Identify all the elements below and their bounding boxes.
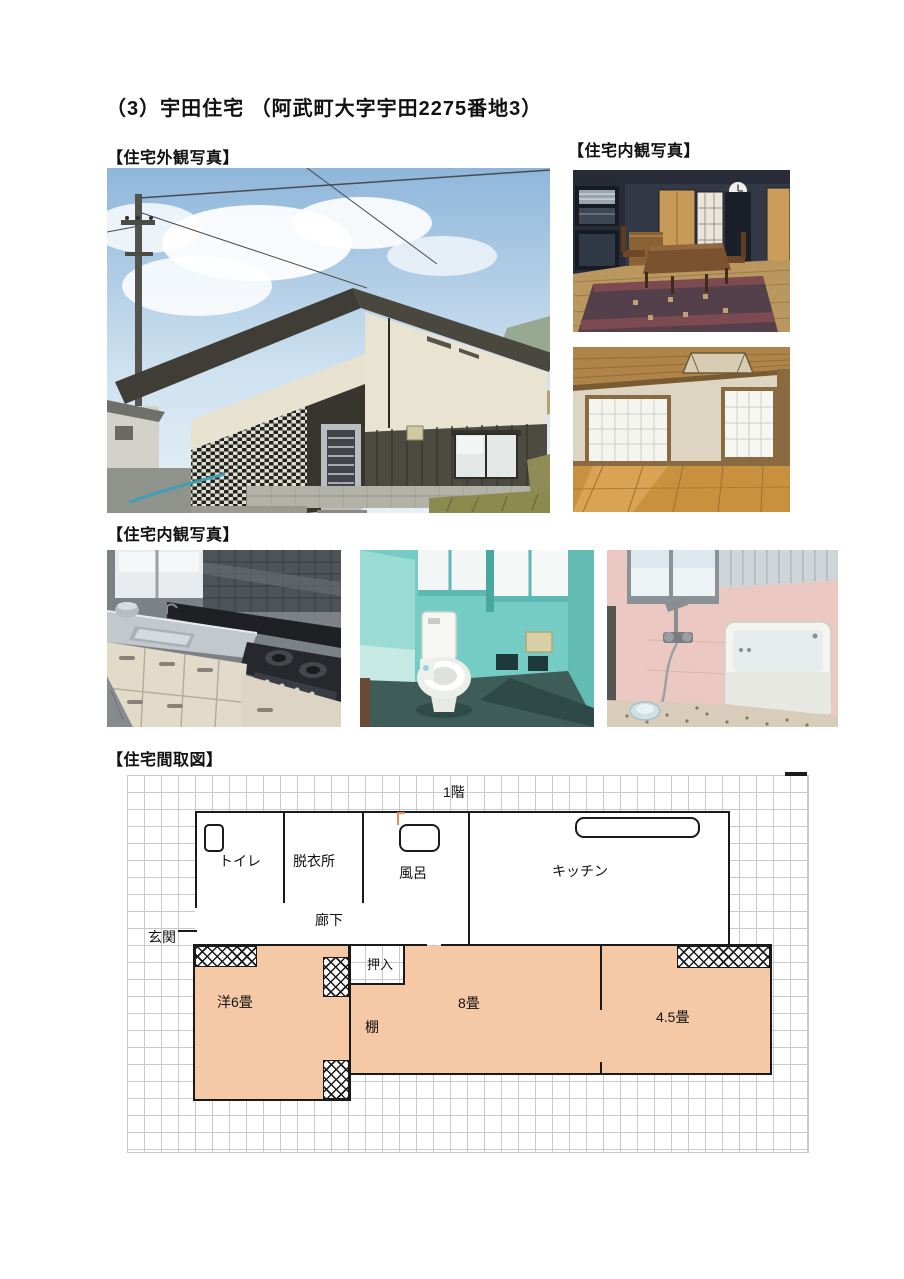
- opening-hatch-45tatami-top: [677, 946, 770, 968]
- entrance-step-line: [178, 930, 197, 932]
- interior-woodroom-illustration: [573, 347, 790, 512]
- room-label-hallway: 廊下: [315, 913, 343, 928]
- interior-photo-wood-floor-room: [573, 347, 790, 512]
- page-title: （3）宇田住宅 （阿武町大字宇田2275番地3）: [106, 92, 542, 121]
- opening-hatch-west6-right-upper: [323, 957, 349, 997]
- wall-toilet-dressing: [283, 811, 285, 903]
- wall-top: [195, 811, 730, 813]
- bath-illustration: [607, 550, 838, 727]
- wall-dressing-bath: [362, 811, 364, 903]
- room-label-toilet: トイレ: [219, 854, 261, 869]
- room-label-closet: 押入: [367, 957, 393, 972]
- room-label-western6: 洋6畳: [217, 995, 253, 1010]
- wall-kitchen-right: [728, 811, 730, 944]
- interior-photo-tatami-room: [573, 170, 790, 332]
- wall-western6-bottom: [193, 1099, 351, 1101]
- bathtub-fixture: [399, 824, 440, 852]
- room-label-45tatami: 4.5畳: [656, 1010, 689, 1025]
- heading-floorplan: 【住宅間取図】: [107, 746, 223, 770]
- wall-bath-kitchen: [468, 811, 470, 944]
- exterior-house-illustration: [107, 168, 550, 513]
- plan-corner-dash: [785, 772, 807, 776]
- opening-hatch-west6-top: [195, 946, 257, 967]
- toilet-illustration: [360, 550, 594, 727]
- room-label-8tatami: 8畳: [458, 996, 480, 1011]
- room-label-shelf: 棚: [365, 1020, 379, 1035]
- wall-45tatami-right: [770, 944, 772, 1075]
- opening-hatch-west6-right-lower: [323, 1060, 349, 1099]
- room-label-dressing: 脱衣所: [293, 854, 335, 869]
- toilet-fixture: [204, 824, 224, 852]
- kitchen-illustration: [107, 550, 341, 727]
- heading-exterior-photos: 【住宅外観写真】: [107, 144, 239, 168]
- floor-label: 1階: [443, 785, 465, 800]
- heading-interior-photos-right: 【住宅内観写真】: [568, 137, 700, 161]
- floorplan-grid: 1階 トイレ 脱衣所 風呂 キッチン 廊下 玄関 押入 洋6畳 8畳 4.5畳 …: [127, 775, 809, 1153]
- heading-interior-photos-bottom: 【住宅内観写真】: [107, 521, 239, 545]
- exterior-house-photo: [107, 168, 550, 513]
- wall-tatami-left: [193, 944, 195, 1101]
- room-8tatami-fill-lower: [351, 985, 770, 1073]
- small-orange-mark: [397, 812, 405, 825]
- room-label-entrance: 玄関: [148, 930, 176, 945]
- document-page: { "page": { "title": "（3）宇田住宅 （阿武町大字宇田22…: [0, 0, 904, 1279]
- interior-tatami-illustration: [573, 170, 790, 332]
- wall-left: [195, 811, 197, 908]
- wall-divider-lower: [600, 1062, 602, 1075]
- wall-8tatami-bottom: [349, 1073, 772, 1075]
- interior-photo-toilet: [360, 550, 594, 727]
- wall-divider-upper: [600, 944, 602, 1010]
- kitchen-counter-fixture: [575, 817, 700, 838]
- room-label-bath: 風呂: [399, 866, 427, 881]
- room-label-kitchen: キッチン: [552, 864, 608, 879]
- interior-photo-bath: [607, 550, 838, 727]
- interior-photo-kitchen: [107, 550, 341, 727]
